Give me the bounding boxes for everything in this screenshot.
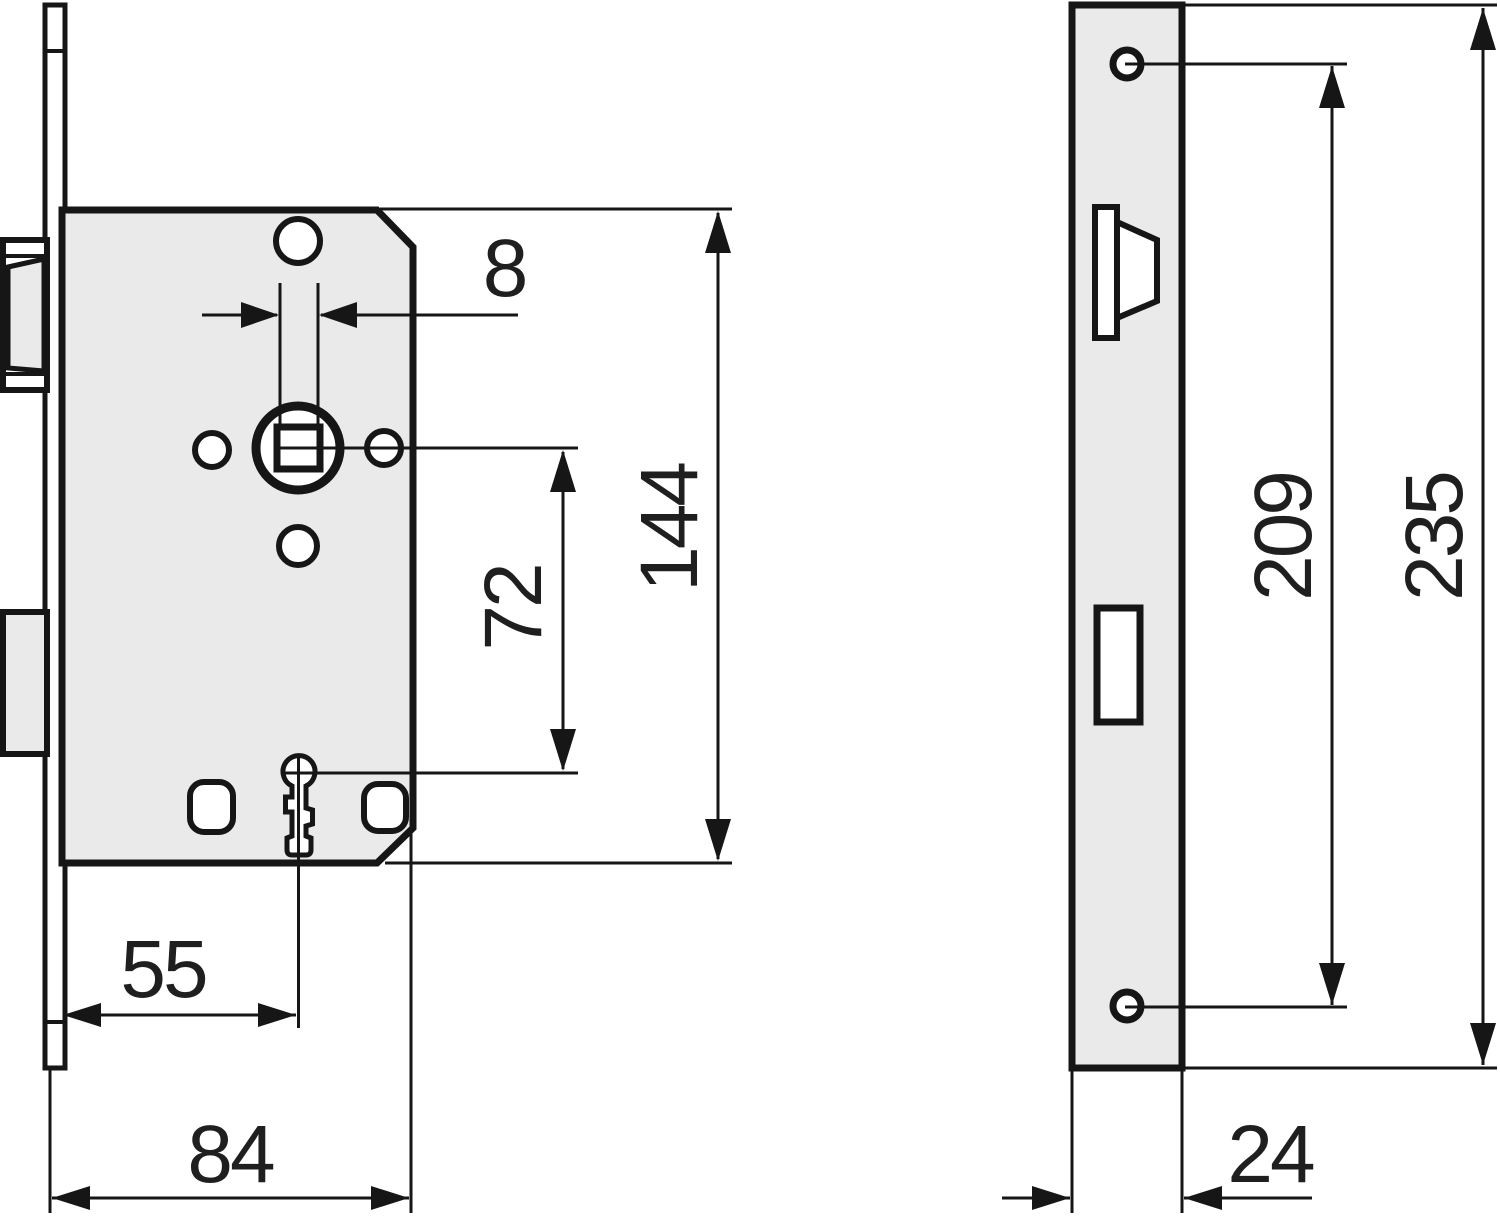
dim84-arrow-left — [52, 1186, 90, 1210]
dim55-arrow-left — [63, 1003, 101, 1027]
front-view: 8 144 72 55 — [3, 5, 732, 1213]
latch-bevel-head — [8, 259, 44, 371]
latch-head-front — [1117, 222, 1157, 318]
dim-label-84: 84 — [187, 1109, 274, 1200]
dim144-arrow-up — [705, 211, 731, 253]
faceplate-front — [1072, 5, 1182, 1068]
deadbolt-slot — [1097, 608, 1140, 722]
dim-label-24: 24 — [1227, 1109, 1314, 1200]
dim-label-144: 144 — [624, 463, 715, 592]
dim-label-72: 72 — [468, 565, 559, 650]
dimension-55: 55 — [63, 924, 296, 1027]
lock-case — [62, 210, 413, 863]
dim72-arrow-down — [550, 729, 576, 771]
dim72-arrow-up — [550, 450, 576, 492]
dimension-235: 235 — [1185, 5, 1497, 1068]
mortise-lock-diagram: 8 144 72 55 — [0, 0, 1500, 1220]
deadbolt — [3, 612, 47, 754]
lock-dimension-drawing: 8 144 72 55 — [0, 0, 1500, 1220]
dim84-arrow-right — [371, 1186, 409, 1210]
dim235-arrow-down — [1470, 1023, 1496, 1065]
faceplate-view: 209 235 24 — [1002, 5, 1497, 1213]
top-fixing-hole — [276, 219, 320, 263]
dim209-arrow-up — [1319, 66, 1345, 108]
latch-bolt — [3, 240, 47, 390]
dim235-arrow-up — [1470, 8, 1496, 50]
latch-slot — [1095, 207, 1117, 338]
dim-label-55: 55 — [120, 924, 206, 1015]
dimension-84: 84 — [50, 830, 411, 1213]
dim-label-8: 8 — [483, 223, 526, 314]
dim55-arrow-right — [258, 1003, 296, 1027]
dimension-72: 72 — [468, 450, 576, 771]
mounting-hole-bottom-right — [364, 784, 406, 831]
dimension-24: 24 — [1002, 1070, 1314, 1213]
dim144-arrow-down — [705, 819, 731, 861]
dim24-arrow-right — [1184, 1186, 1222, 1210]
dim-label-209: 209 — [1238, 473, 1329, 601]
mounting-hole-bottom-left — [190, 782, 233, 832]
dimension-144: 144 — [380, 209, 732, 863]
lower-fixing-hole — [279, 527, 317, 565]
handle-screw-hole-left — [195, 433, 229, 467]
dim-label-235: 235 — [1389, 473, 1480, 601]
dim209-arrow-down — [1319, 963, 1345, 1005]
dim24-arrow-left — [1032, 1186, 1070, 1210]
